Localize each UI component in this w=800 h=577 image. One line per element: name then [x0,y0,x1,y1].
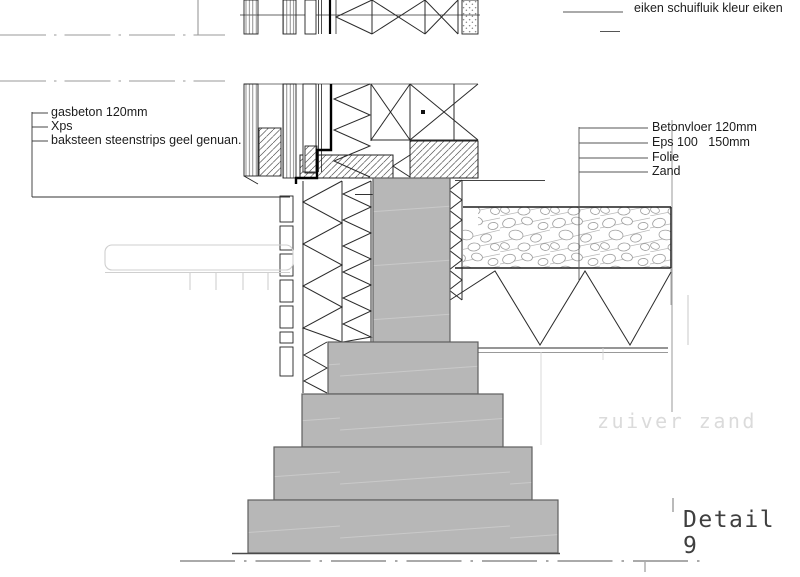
break-lines [0,0,225,81]
label-eps: Eps 100 150mm [652,136,750,149]
label-xps: Xps [51,120,73,133]
drawing-title: Detail 9 [683,507,800,559]
label-folie: Folie [652,151,679,164]
eps-insulation-zigzag [450,271,671,353]
label-eiken-schuifluik: eiken schuifluik kleur eiken [634,2,783,15]
ground-line [180,561,700,572]
wall-section-upper [240,0,480,34]
detail-drawing-page: eiken schuifluik kleur eiken gasbeton 12… [0,0,800,577]
concrete-floor-slab [455,207,671,305]
watermark-zuiver-zand: zuiver zand [597,409,757,433]
detail-drawing-svg [0,0,800,577]
label-gasbeton: gasbeton 120mm [51,106,148,119]
label-baksteen: baksteen steenstrips geel genuan. [51,134,241,147]
label-betonvloer: Betonvloer 120mm [652,121,757,134]
label-zand: Zand [652,165,681,178]
